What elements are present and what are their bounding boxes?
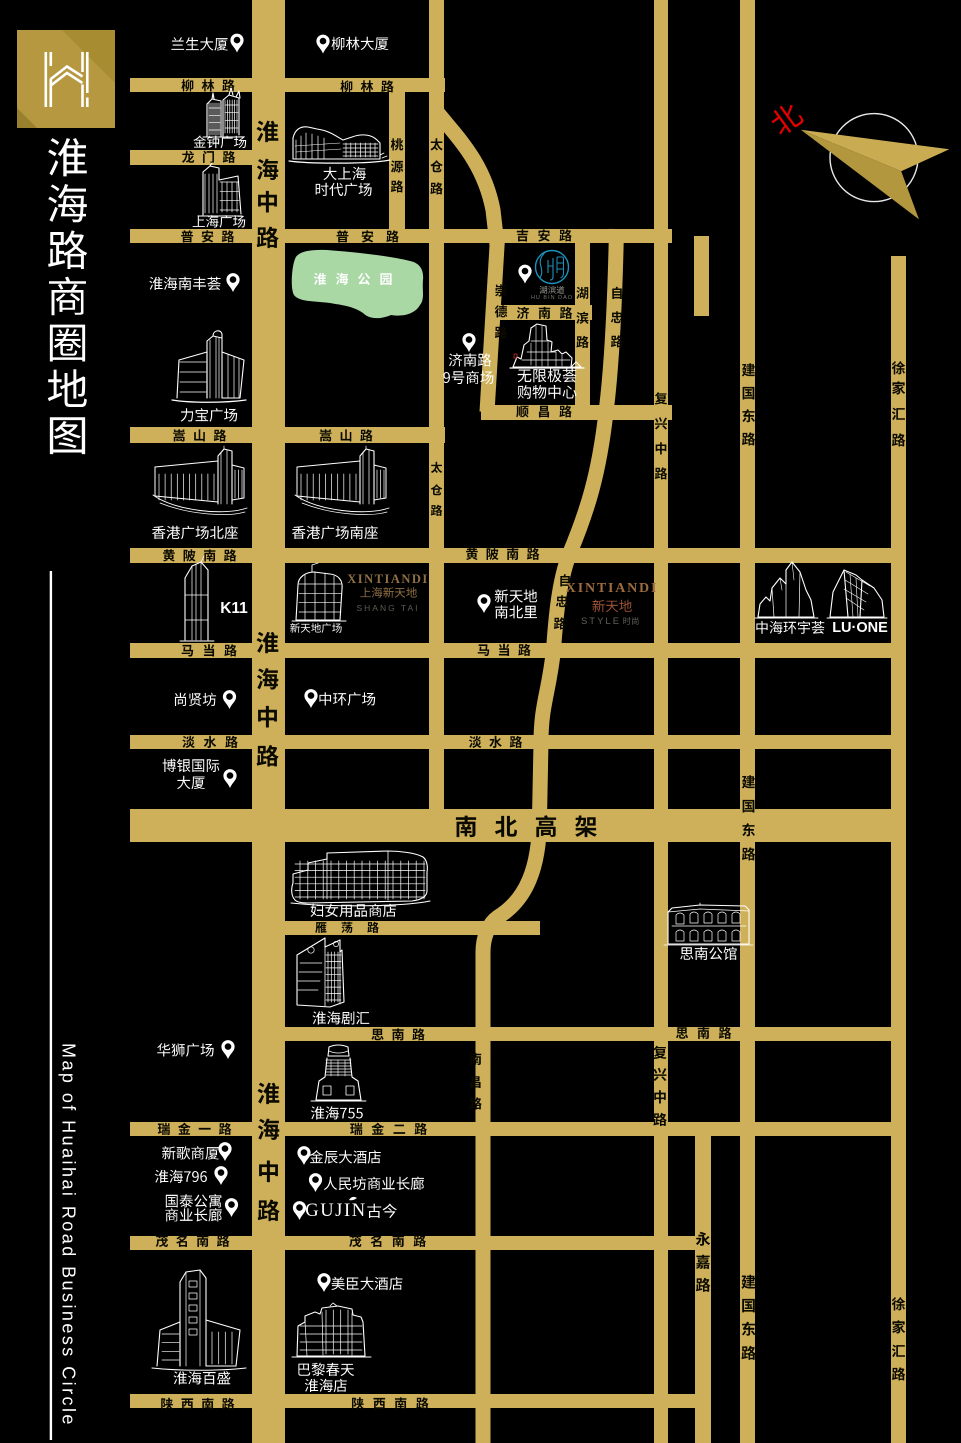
svg-text:LU·ONE: LU·ONE	[832, 620, 888, 636]
svg-text:XINTIANDI: XINTIANDI	[566, 581, 658, 596]
svg-text:Map of Huaihai Road Business C: Map of Huaihai Road Business Circle	[59, 1043, 79, 1427]
svg-text:K11: K11	[220, 600, 248, 617]
svg-text:XINTIANDI: XINTIANDI	[347, 572, 429, 586]
svg-text:SHANG TAI: SHANG TAI	[356, 603, 419, 613]
svg-text:STYLE: STYLE	[581, 616, 621, 627]
svg-text:GUJIN: GUJIN	[305, 1201, 366, 1221]
svg-text:HU BIN DAO: HU BIN DAO	[531, 295, 573, 301]
